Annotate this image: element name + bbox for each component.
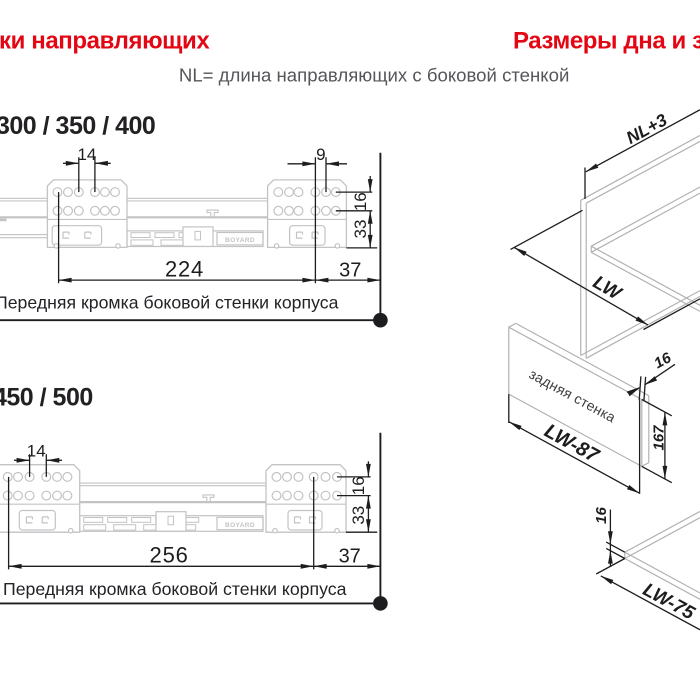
svg-text:450 / 500: 450 / 500: [0, 384, 93, 412]
svg-text:NL= длина направляющих с боков: NL= длина направляющих с боковой стенкой: [179, 64, 569, 85]
svg-text:9: 9: [316, 145, 325, 164]
svg-text:37: 37: [339, 260, 361, 282]
svg-text:256: 256: [150, 543, 189, 568]
svg-text:BOYARD: BOYARD: [225, 522, 255, 529]
svg-text:14: 14: [77, 145, 96, 164]
svg-text:33: 33: [351, 220, 370, 239]
svg-text:Передняя кромка боковой стенки: Передняя кромка боковой стенки корпуса: [3, 579, 347, 599]
svg-text:33: 33: [349, 506, 368, 525]
svg-text:BOYARD: BOYARD: [225, 237, 255, 244]
svg-text:300 / 350 / 400: 300 / 350 / 400: [0, 112, 155, 140]
svg-text:16: 16: [351, 192, 370, 211]
svg-text:Передняя кромка боковой стенки: Передняя кромка боковой стенки корпуса: [0, 293, 339, 313]
svg-text:167: 167: [650, 425, 667, 451]
svg-text:14: 14: [27, 442, 46, 461]
svg-text:37: 37: [339, 545, 361, 567]
svg-text:224: 224: [165, 256, 204, 281]
svg-text:16: 16: [349, 476, 368, 495]
svg-text:Размеры дна и задней стенки: Размеры дна и задней стенки: [513, 28, 700, 55]
svg-text:ки направляющих: ки направляющих: [0, 28, 210, 55]
svg-text:16: 16: [593, 507, 610, 524]
